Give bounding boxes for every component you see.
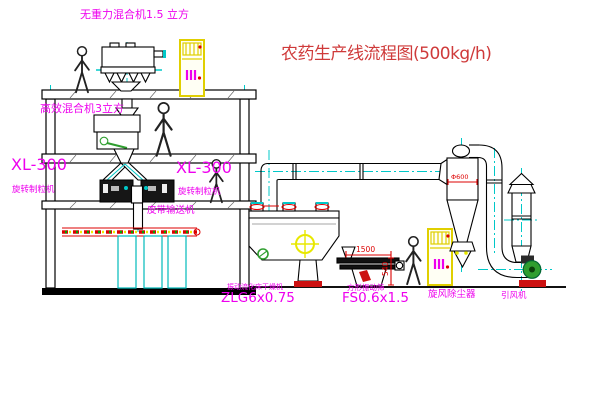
dryer-top-ports — [250, 203, 329, 211]
pesticide-line-flow-drawing: Φ600 — [0, 0, 600, 403]
label-granulator-left-name: 旋转制粒机 — [12, 186, 55, 195]
cyclone-diameter-dim: Φ600 — [451, 173, 469, 181]
induced-draft-fan — [519, 256, 546, 288]
building-column-right — [240, 99, 249, 288]
label-granulator-mid-model: XL-300 — [176, 160, 232, 176]
dryer-support-base — [294, 281, 322, 287]
person-floor2 — [156, 103, 172, 156]
belt-support-columns — [118, 236, 186, 288]
mixer-nozzle-cap — [163, 50, 166, 58]
square-vibrating-sieve: 1500 540 — [337, 245, 404, 286]
y-duct — [103, 163, 147, 180]
label-dryer-model: ZLG6x0.75 — [221, 292, 295, 306]
control-cabinet-top — [180, 40, 204, 96]
person-roof — [75, 47, 89, 93]
sieve-height-dim: 540 — [381, 261, 390, 276]
control-cabinet-dryer — [428, 229, 452, 285]
sieve-length-dim: 1500 — [356, 245, 375, 254]
granulator-right — [141, 180, 174, 202]
discharge-chute — [132, 186, 143, 229]
person-ground — [406, 237, 420, 284]
stack-rain-cap — [510, 174, 533, 185]
label-top-mixer: 无重力混合机1.5 立方 — [80, 9, 189, 20]
label-cyclone: 旋风除尘器 — [428, 290, 476, 300]
zero-gravity-mixer — [96, 43, 166, 91]
label-sieve-model: FS0.6x1.5 — [342, 292, 409, 306]
cyclone-separator: Φ600 — [447, 145, 478, 267]
label-granulator-mid-name: 旋转制粒机 — [178, 188, 221, 197]
belt-conveyor — [62, 228, 200, 236]
label-granulator-left-model: XL-300 — [11, 157, 67, 173]
granulator-left — [100, 180, 133, 202]
fluid-bed-dryer — [249, 164, 339, 288]
page-title: 农药生产线流程图(500kg/h) — [281, 46, 491, 63]
label-fan: 引风机 — [501, 292, 527, 301]
fan-base — [519, 280, 546, 287]
label-floor2-mixer: 高效混合机3立方 — [40, 103, 124, 114]
roof-beam — [42, 90, 256, 99]
label-belt-conveyor: 皮带输送机 — [147, 206, 195, 216]
